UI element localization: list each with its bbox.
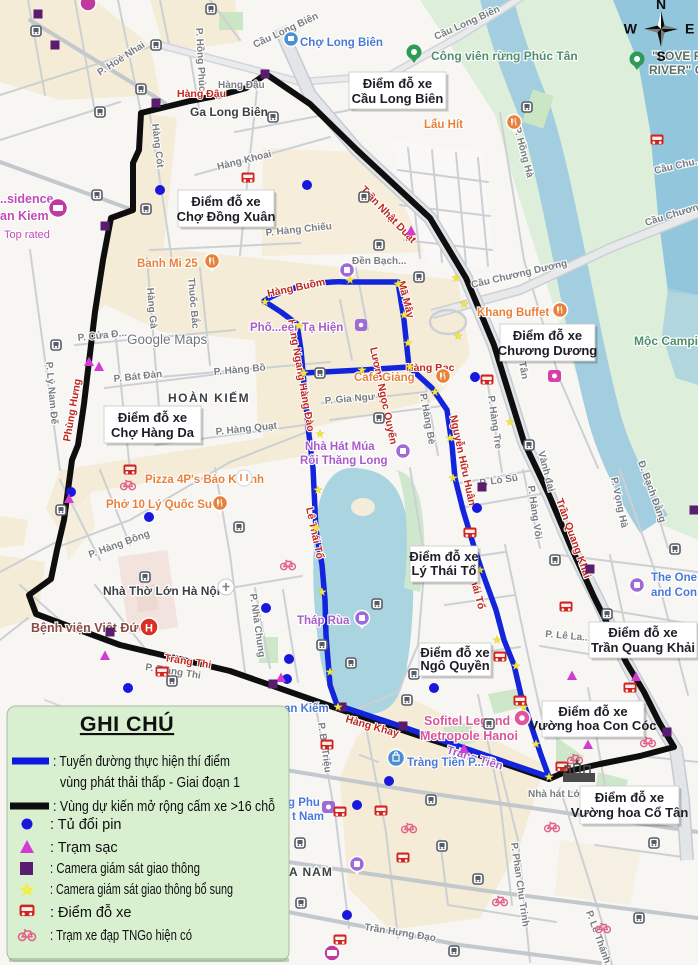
svg-text:: Camera giám sát giao thông: : Camera giám sát giao thông (50, 861, 200, 877)
svg-text:g Phu: g Phu (288, 797, 320, 809)
svg-text:Nhà Hát Múa: Nhà Hát Múa (305, 441, 375, 453)
svg-text:Vường hoa Cổ Tân: Vường hoa Cổ Tân (571, 805, 689, 820)
svg-text:RIVER" C...: RIVER" C... (649, 63, 698, 77)
svg-text:The One: The One (651, 572, 697, 584)
svg-text:Rối Thăng Long: Rối Thăng Long (300, 455, 388, 467)
svg-text:Đền Bạch...: Đền Bạch... (352, 255, 407, 267)
svg-text:Phố...eer Tạ Hiện: Phố...eer Tạ Hiện (250, 322, 343, 334)
svg-text:an Kiem: an Kiem (0, 209, 49, 223)
svg-text:Ga Long Biên: Ga Long Biên (190, 105, 268, 119)
svg-text:GHI CHÚ: GHI CHÚ (80, 711, 174, 736)
svg-text:Metropole Hanoi: Metropole Hanoi (420, 729, 518, 743)
svg-text:Điểm đỗ xe: Điểm đỗ xe (513, 328, 582, 343)
svg-text:Nhà Thờ Lớn Hà Nội: Nhà Thờ Lớn Hà Nội (103, 584, 220, 598)
svg-text:: Camera giám sát giao thông b: : Camera giám sát giao thông bổ sung (50, 882, 233, 898)
svg-text:Google Maps: Google Maps (127, 332, 208, 347)
svg-text:Chợ Hàng Da: Chợ Hàng Da (111, 425, 195, 440)
svg-text:Điểm đỗ xe: Điểm đỗ xe (608, 625, 677, 640)
svg-text:Mộc Campin...: Mộc Campin... (634, 334, 698, 348)
svg-text:Điểm đỗ xe: Điểm đỗ xe (409, 549, 478, 564)
svg-text:H: H (145, 623, 153, 635)
svg-text:Cầu Long Biên: Cầu Long Biên (352, 91, 444, 106)
svg-text:N: N (656, 0, 666, 12)
svg-text:: Điểm đỗ xe: : Điểm đỗ xe (50, 904, 131, 921)
svg-text:Điểm đỗ xe: Điểm đỗ xe (191, 194, 260, 209)
svg-text:S: S (656, 48, 665, 64)
svg-text:Sofitel Legend: Sofitel Legend (424, 714, 510, 728)
svg-text:Chợ Long Biên: Chợ Long Biên (300, 37, 383, 49)
svg-text:vùng phát thải thấp - Giai đoạ: vùng phát thải thấp - Giai đoạn 1 (60, 775, 240, 791)
svg-text:t Nam: t Nam (292, 811, 324, 823)
svg-text:..sidence: ..sidence (0, 192, 54, 206)
svg-text:Điểm đỗ xe: Điểm đỗ xe (558, 704, 627, 719)
svg-text:Bệnh viện Việt Đức: Bệnh viện Việt Đức (31, 621, 145, 635)
svg-text:Chương Dương: Chương Dương (498, 343, 597, 358)
svg-text:Lẩu Hít: Lẩu Hít (424, 119, 463, 131)
svg-text:Khang Buffet: Khang Buffet (477, 307, 549, 319)
svg-text:Phở 10 Lý Quốc Sư: Phở 10 Lý Quốc Sư (106, 499, 214, 511)
svg-text:Chợ Đồng Xuân: Chợ Đồng Xuân (177, 209, 276, 224)
svg-text:E: E (685, 21, 694, 37)
svg-text:Trần Quang Khải: Trần Quang Khải (591, 640, 695, 655)
svg-text:Cafe Giảng: Cafe Giảng (354, 372, 415, 384)
svg-text:: Tủ đổi pin: : Tủ đổi pin (50, 817, 121, 833)
svg-text:Banh Mi 25: Banh Mi 25 (137, 258, 198, 270)
svg-text:: Tuyến đường thực hiện thí đi: : Tuyến đường thực hiện thí điểm (53, 754, 230, 770)
svg-text:Tháp Rùa: Tháp Rùa (297, 615, 350, 627)
svg-text:Ngô Quyền: Ngô Quyền (420, 658, 489, 673)
svg-text:: Vùng dự kiến mở rộng cấm xe: : Vùng dự kiến mở rộng cấm xe >16 chỗ (53, 798, 275, 815)
svg-text:Điểm đỗ xe: Điểm đỗ xe (118, 410, 187, 425)
svg-text:: Trạm xe đạp TNGo hiện có: : Trạm xe đạp TNGo hiện có (50, 928, 192, 944)
svg-text:Hàng Đậu: Hàng Đậu (218, 80, 265, 91)
svg-text:Top rated: Top rated (4, 229, 50, 241)
svg-text:Lý Thái Tổ: Lý Thái Tổ (412, 563, 477, 578)
svg-text:: Trạm sạc: : Trạm sạc (50, 840, 118, 856)
svg-text:an Kiếm: an Kiếm (284, 703, 329, 715)
svg-text:Tràng Tiền P...: Tràng Tiền P... (407, 757, 484, 769)
svg-text:Điểm đỗ xe: Điểm đỗ xe (363, 76, 432, 91)
svg-text:W: W (624, 21, 638, 37)
svg-text:and Con: and Con (651, 587, 697, 599)
svg-text:HOÀN KIẾM: HOÀN KIẾM (168, 390, 250, 405)
svg-text:Điểm đỗ xe: Điểm đỗ xe (595, 790, 664, 805)
svg-text:Công viên rừng Phúc Tân: Công viên rừng Phúc Tân (431, 49, 578, 63)
svg-text:Vường hoa Con Cóc: Vường hoa Con Cóc (530, 718, 657, 733)
